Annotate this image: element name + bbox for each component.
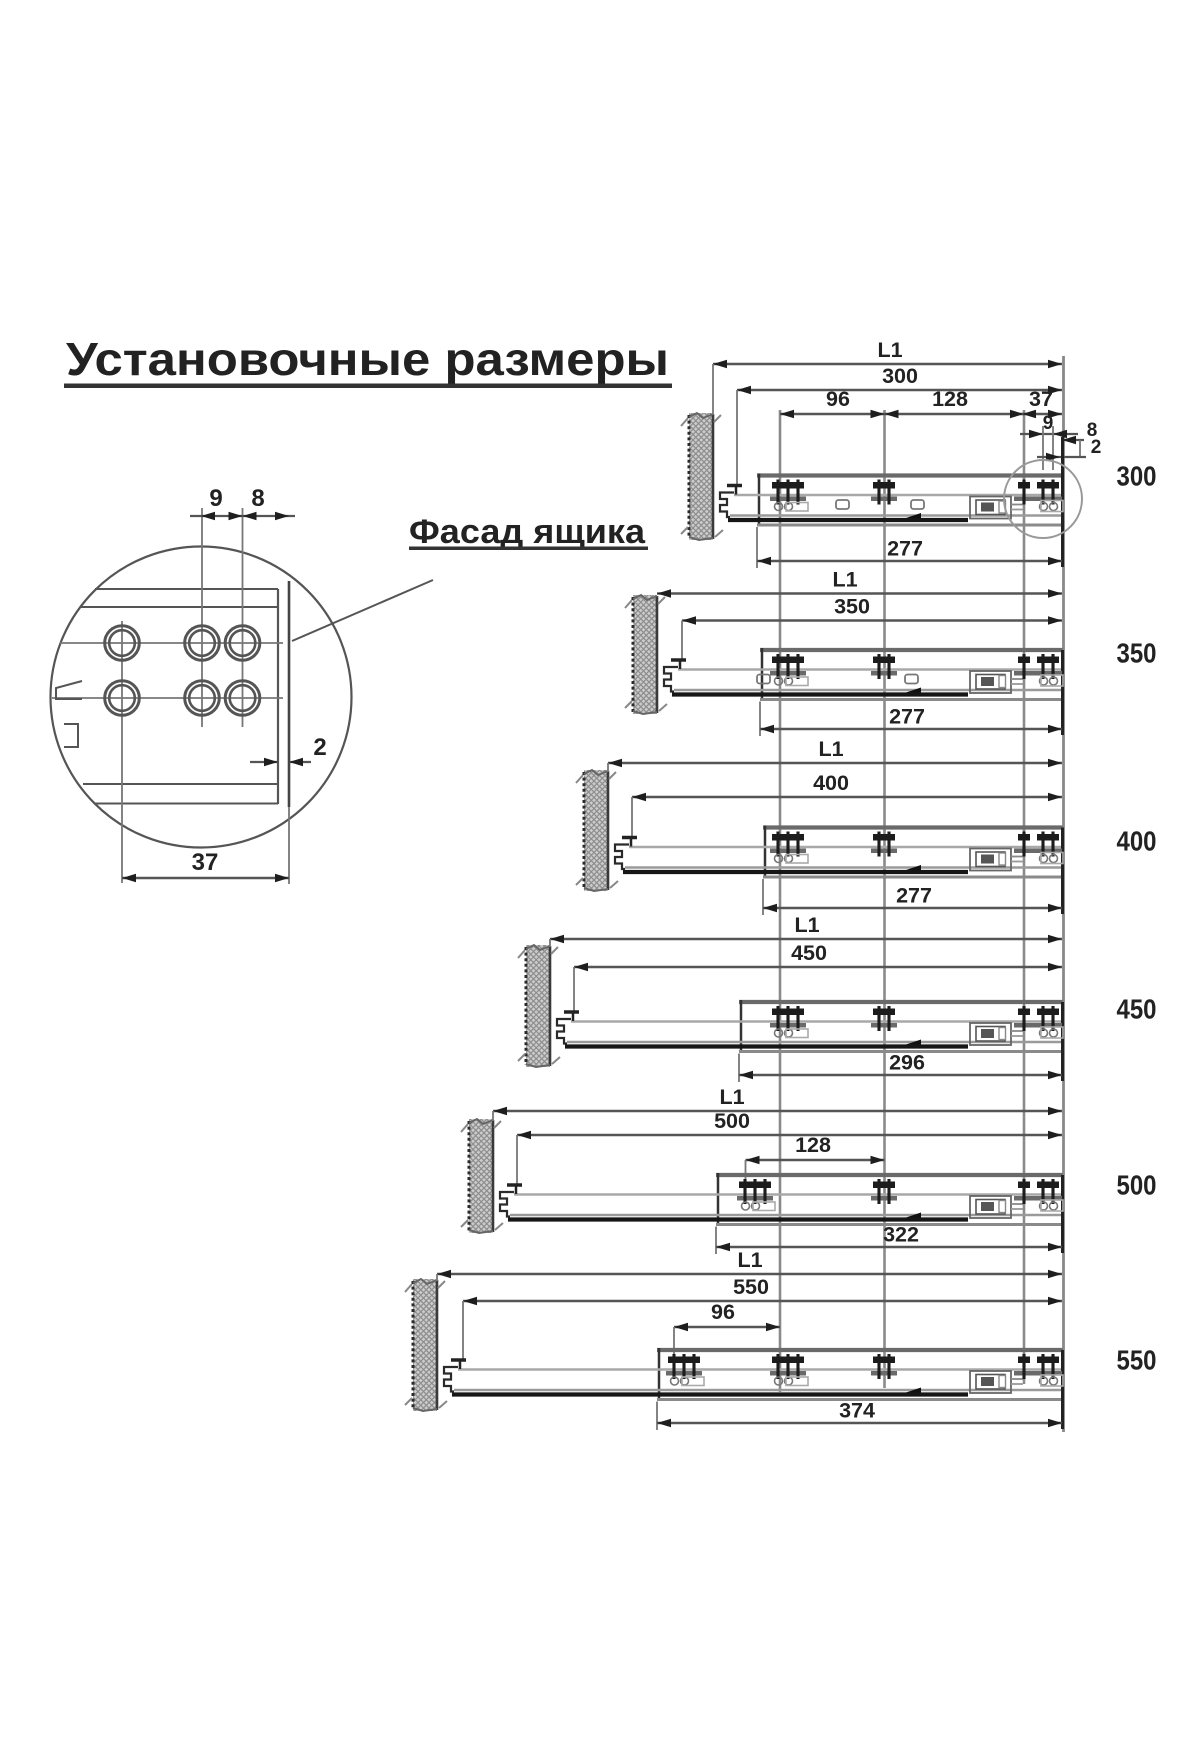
svg-text:550: 550 — [733, 1275, 769, 1299]
svg-text:300: 300 — [882, 364, 918, 388]
svg-text:277: 277 — [887, 537, 923, 561]
svg-text:128: 128 — [932, 387, 968, 411]
svg-text:Фасад ящика: Фасад ящика — [409, 513, 646, 551]
svg-text:8: 8 — [251, 485, 264, 512]
svg-text:350: 350 — [834, 595, 870, 619]
svg-text:277: 277 — [896, 884, 932, 908]
svg-text:96: 96 — [826, 387, 850, 411]
svg-text:2: 2 — [313, 734, 326, 761]
svg-text:96: 96 — [711, 1300, 735, 1324]
svg-text:2: 2 — [1091, 437, 1102, 458]
svg-text:Установочные размеры: Установочные размеры — [66, 333, 669, 385]
svg-text:L1: L1 — [818, 737, 843, 761]
svg-text:L1: L1 — [794, 913, 819, 937]
svg-text:L1: L1 — [719, 1085, 744, 1109]
svg-text:9: 9 — [1043, 413, 1054, 434]
svg-text:400: 400 — [813, 771, 849, 795]
svg-text:L1: L1 — [877, 338, 902, 362]
svg-text:37: 37 — [192, 849, 219, 876]
svg-text:400: 400 — [1117, 826, 1157, 857]
svg-text:L1: L1 — [832, 568, 857, 592]
svg-text:300: 300 — [1117, 461, 1157, 492]
svg-text:322: 322 — [883, 1223, 919, 1247]
svg-text:296: 296 — [889, 1051, 925, 1075]
svg-text:500: 500 — [714, 1109, 750, 1133]
svg-text:450: 450 — [1117, 994, 1157, 1025]
svg-text:128: 128 — [795, 1133, 831, 1157]
svg-text:350: 350 — [1117, 638, 1157, 669]
svg-text:550: 550 — [1117, 1345, 1157, 1376]
svg-text:500: 500 — [1117, 1170, 1157, 1201]
svg-text:374: 374 — [839, 1399, 875, 1423]
svg-text:37: 37 — [1029, 387, 1053, 411]
svg-text:9: 9 — [209, 485, 222, 512]
svg-text:277: 277 — [889, 705, 925, 729]
svg-text:450: 450 — [791, 941, 827, 965]
svg-text:L1: L1 — [737, 1248, 762, 1272]
